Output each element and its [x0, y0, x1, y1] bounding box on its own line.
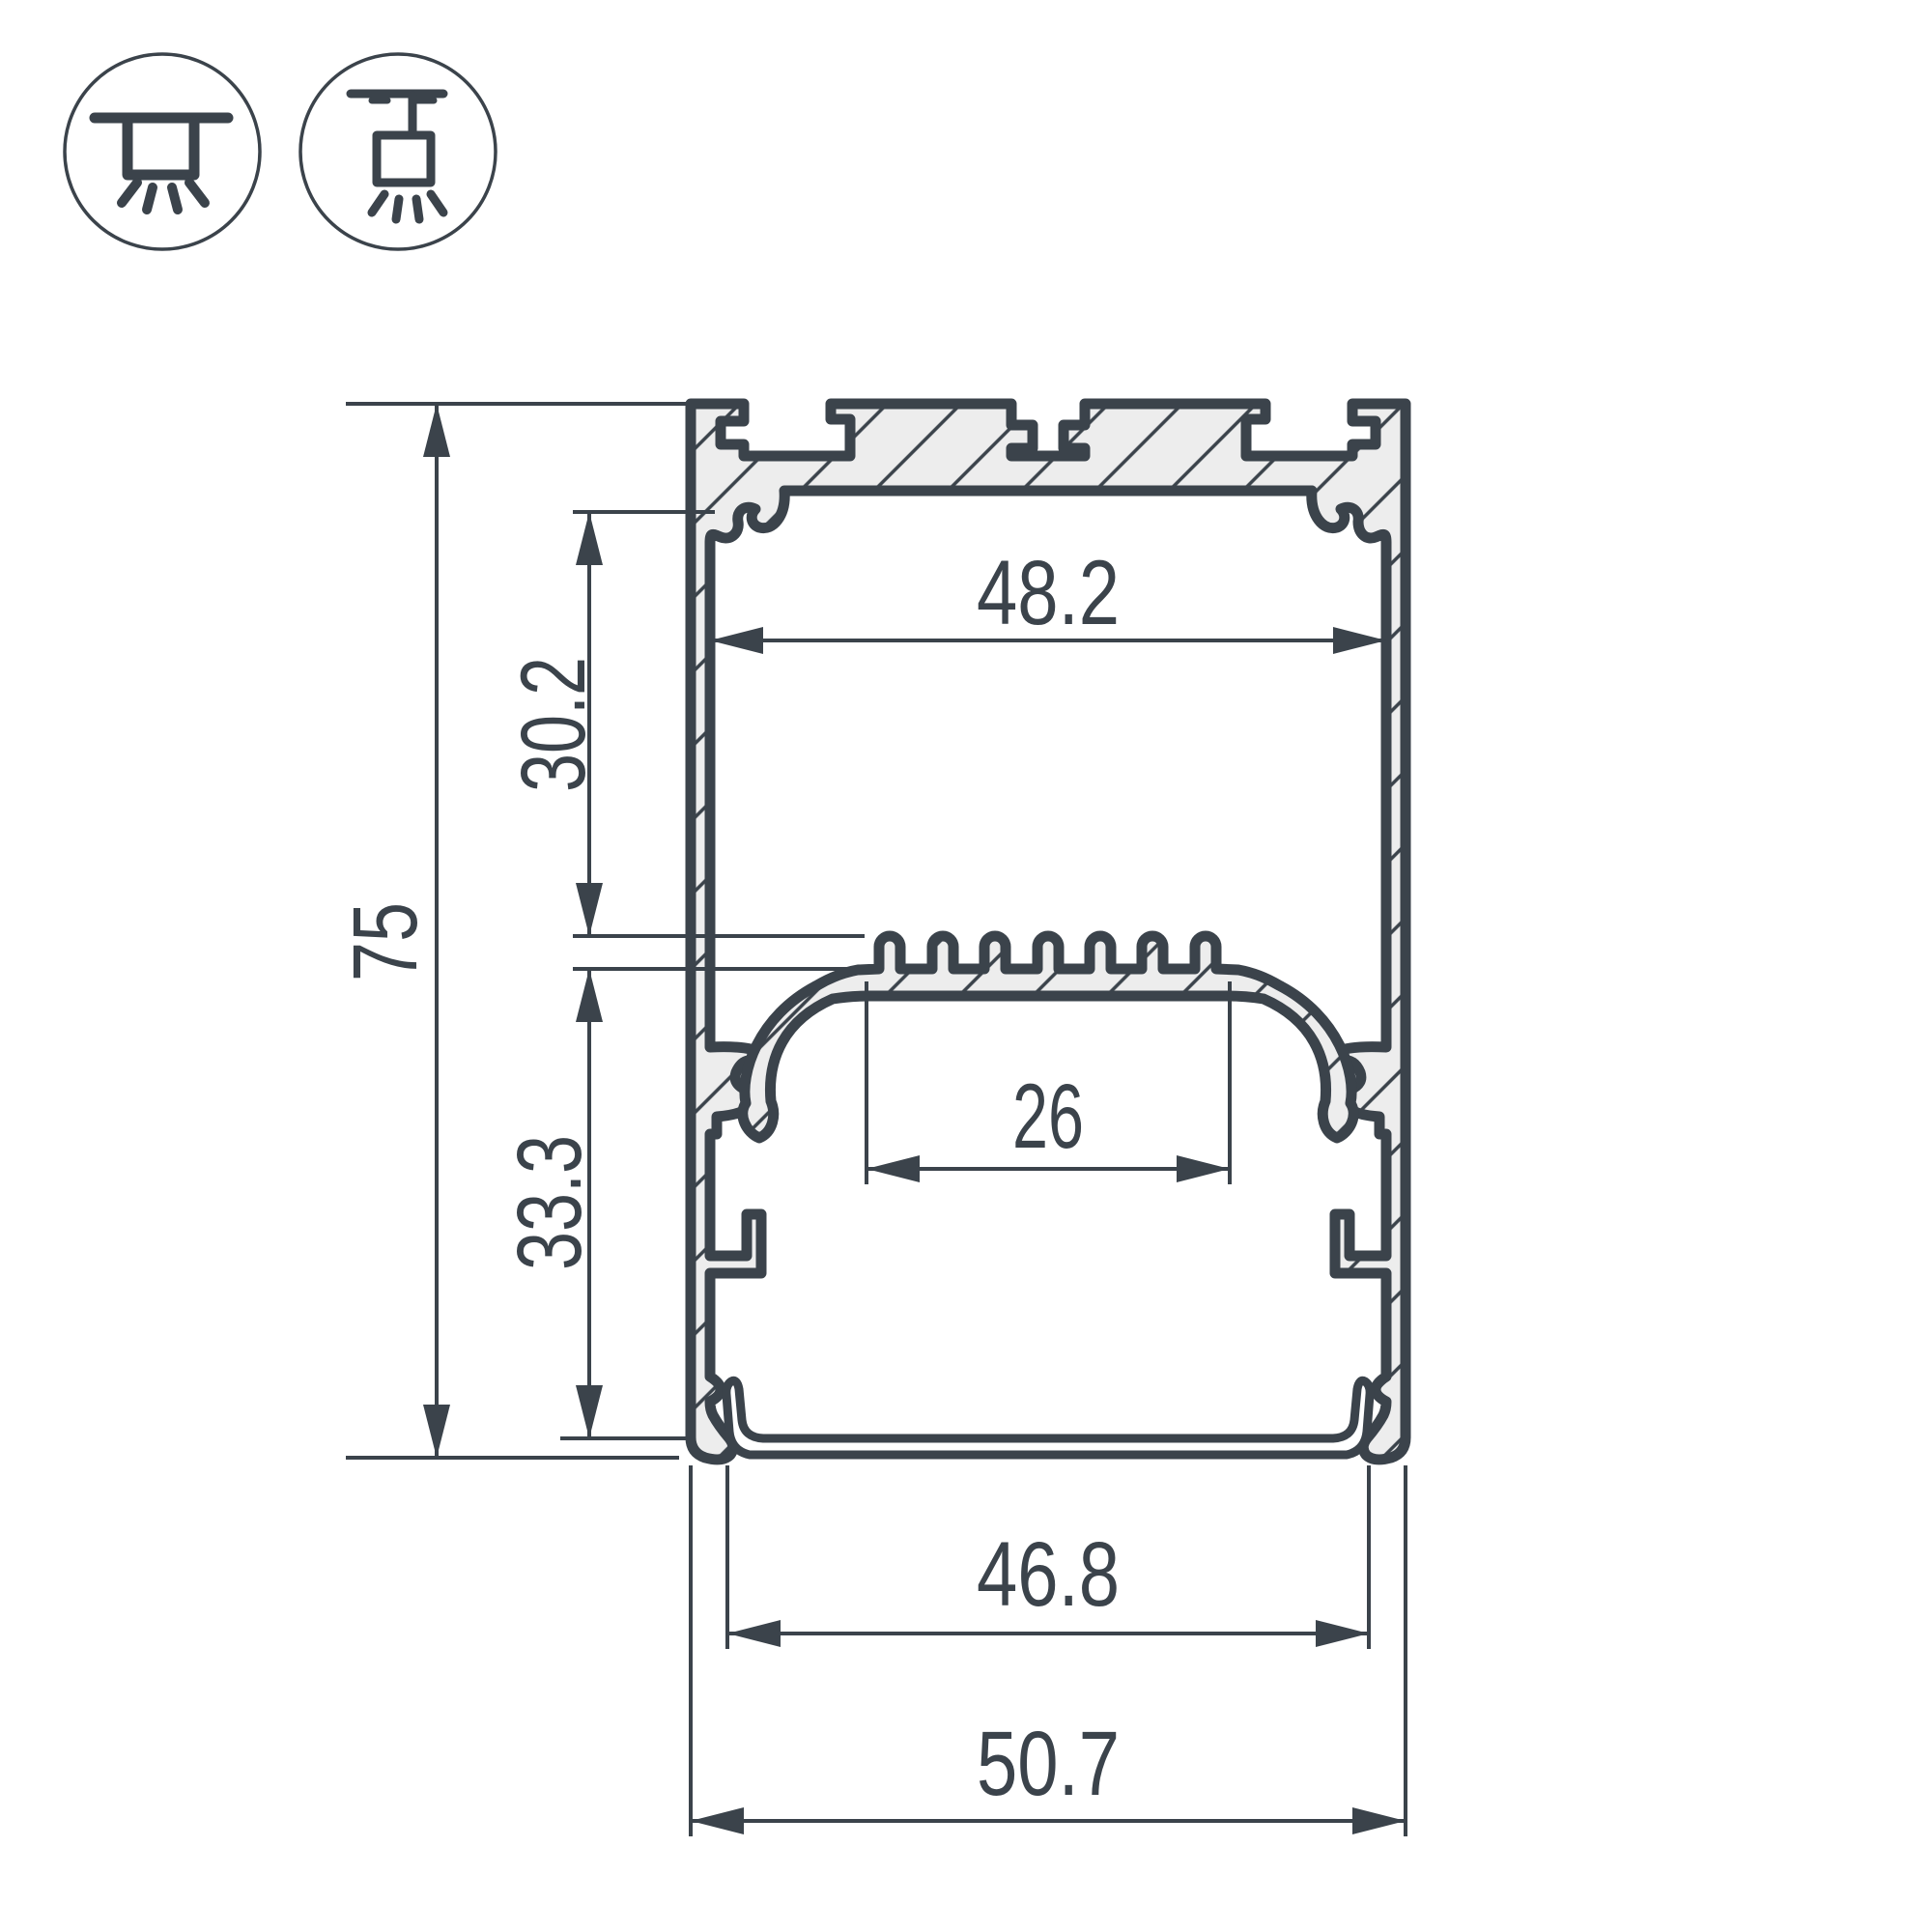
arrowhead-left	[867, 1155, 920, 1182]
arrowhead-left	[727, 1620, 781, 1647]
arrowhead-right	[1316, 1620, 1369, 1647]
technical-drawing-page: 75 30.2 33.3 48.2 26	[0, 0, 1932, 1932]
dim-overall-width-label: 50.7	[977, 1713, 1120, 1815]
arrowhead-right	[1177, 1155, 1230, 1182]
dim-bottom-opening-label: 46.8	[977, 1523, 1120, 1626]
arrowhead-right	[1352, 1807, 1406, 1834]
dim-led-shelf-label: 26	[1012, 1065, 1084, 1168]
surface-mount-icon	[65, 54, 260, 249]
dimension-annotations: 75 30.2 33.3 48.2 26	[334, 404, 1406, 1836]
arrowhead-left	[691, 1807, 744, 1834]
light-rays	[122, 183, 205, 210]
surface-fixture-box	[128, 122, 194, 175]
dim-bottom-opening: 46.8	[727, 1523, 1369, 1647]
dim-lower-chamber: 33.3	[498, 969, 603, 1438]
arrowhead-up	[576, 969, 603, 1022]
mounting-icons	[65, 54, 496, 249]
light-rays	[372, 194, 443, 219]
arrowhead-down	[576, 1385, 603, 1438]
dim-lower-chamber-label: 33.3	[498, 1135, 601, 1270]
arrowhead-up	[576, 512, 603, 565]
extension-lines	[346, 404, 1406, 1836]
dim-overall-height: 75	[334, 404, 450, 1458]
dim-overall-height-label: 75	[334, 902, 437, 981]
arrowhead-down	[423, 1405, 450, 1458]
dim-inner-width-label: 48.2	[977, 542, 1120, 644]
surface-mount-icon-circle	[65, 54, 260, 249]
dim-led-shelf: 26	[867, 1065, 1230, 1182]
dim-upper-chamber: 30.2	[502, 512, 605, 936]
arrowhead-left	[710, 627, 763, 654]
profile-drawing-svg: 75 30.2 33.3 48.2 26	[0, 0, 1932, 1932]
diffuser-cover	[726, 1380, 1370, 1455]
dim-inner-width: 48.2	[710, 542, 1386, 654]
arrowhead-down	[576, 883, 603, 936]
pendant-mount-icon	[300, 54, 496, 249]
dim-overall-width: 50.7	[691, 1713, 1406, 1834]
pendant-fixture-box	[377, 135, 431, 183]
arrowhead-right	[1333, 627, 1386, 654]
dim-upper-chamber-label: 30.2	[502, 657, 605, 792]
arrowhead-up	[423, 404, 450, 457]
